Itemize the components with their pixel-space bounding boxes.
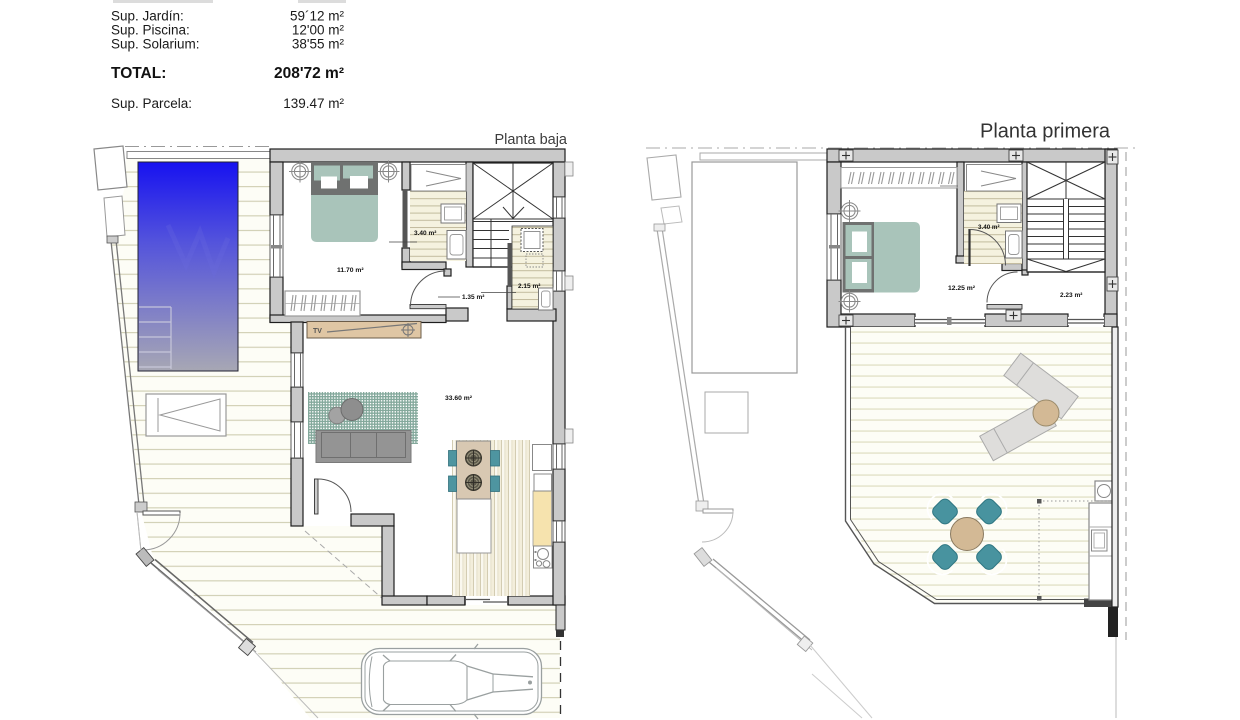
- svg-text:TV: TV: [313, 328, 322, 335]
- svg-text:12'00 m²: 12'00 m²: [292, 23, 345, 38]
- svg-text:Sup. Solarium:: Sup. Solarium:: [111, 37, 200, 52]
- svg-text:2.15 m²: 2.15 m²: [518, 283, 541, 290]
- svg-text:TOTAL:: TOTAL:: [111, 65, 166, 82]
- svg-text:11.70 m²: 11.70 m²: [337, 267, 364, 274]
- svg-text:38'55 m²: 38'55 m²: [292, 37, 345, 52]
- svg-text:1.35 m²: 1.35 m²: [462, 294, 485, 301]
- svg-text:Sup. Parcela:: Sup. Parcela:: [111, 96, 192, 111]
- svg-text:Planta primera: Planta primera: [980, 121, 1111, 143]
- svg-text:59´12 m²: 59´12 m²: [290, 9, 345, 24]
- svg-text:Planta baja: Planta baja: [494, 132, 567, 148]
- svg-text:2.23 m²: 2.23 m²: [1060, 292, 1083, 299]
- svg-text:139.47 m²: 139.47 m²: [283, 96, 344, 111]
- svg-text:Sup. Jardín:: Sup. Jardín:: [111, 9, 184, 24]
- svg-text:3.40 m²: 3.40 m²: [978, 224, 1000, 231]
- svg-text:12.25 m²: 12.25 m²: [948, 285, 976, 292]
- svg-text:Sup. Piscina:: Sup. Piscina:: [111, 23, 190, 38]
- svg-text:33.60 m²: 33.60 m²: [445, 395, 473, 402]
- svg-text:208'72 m²: 208'72 m²: [274, 65, 344, 82]
- svg-text:3.40 m²: 3.40 m²: [414, 230, 437, 237]
